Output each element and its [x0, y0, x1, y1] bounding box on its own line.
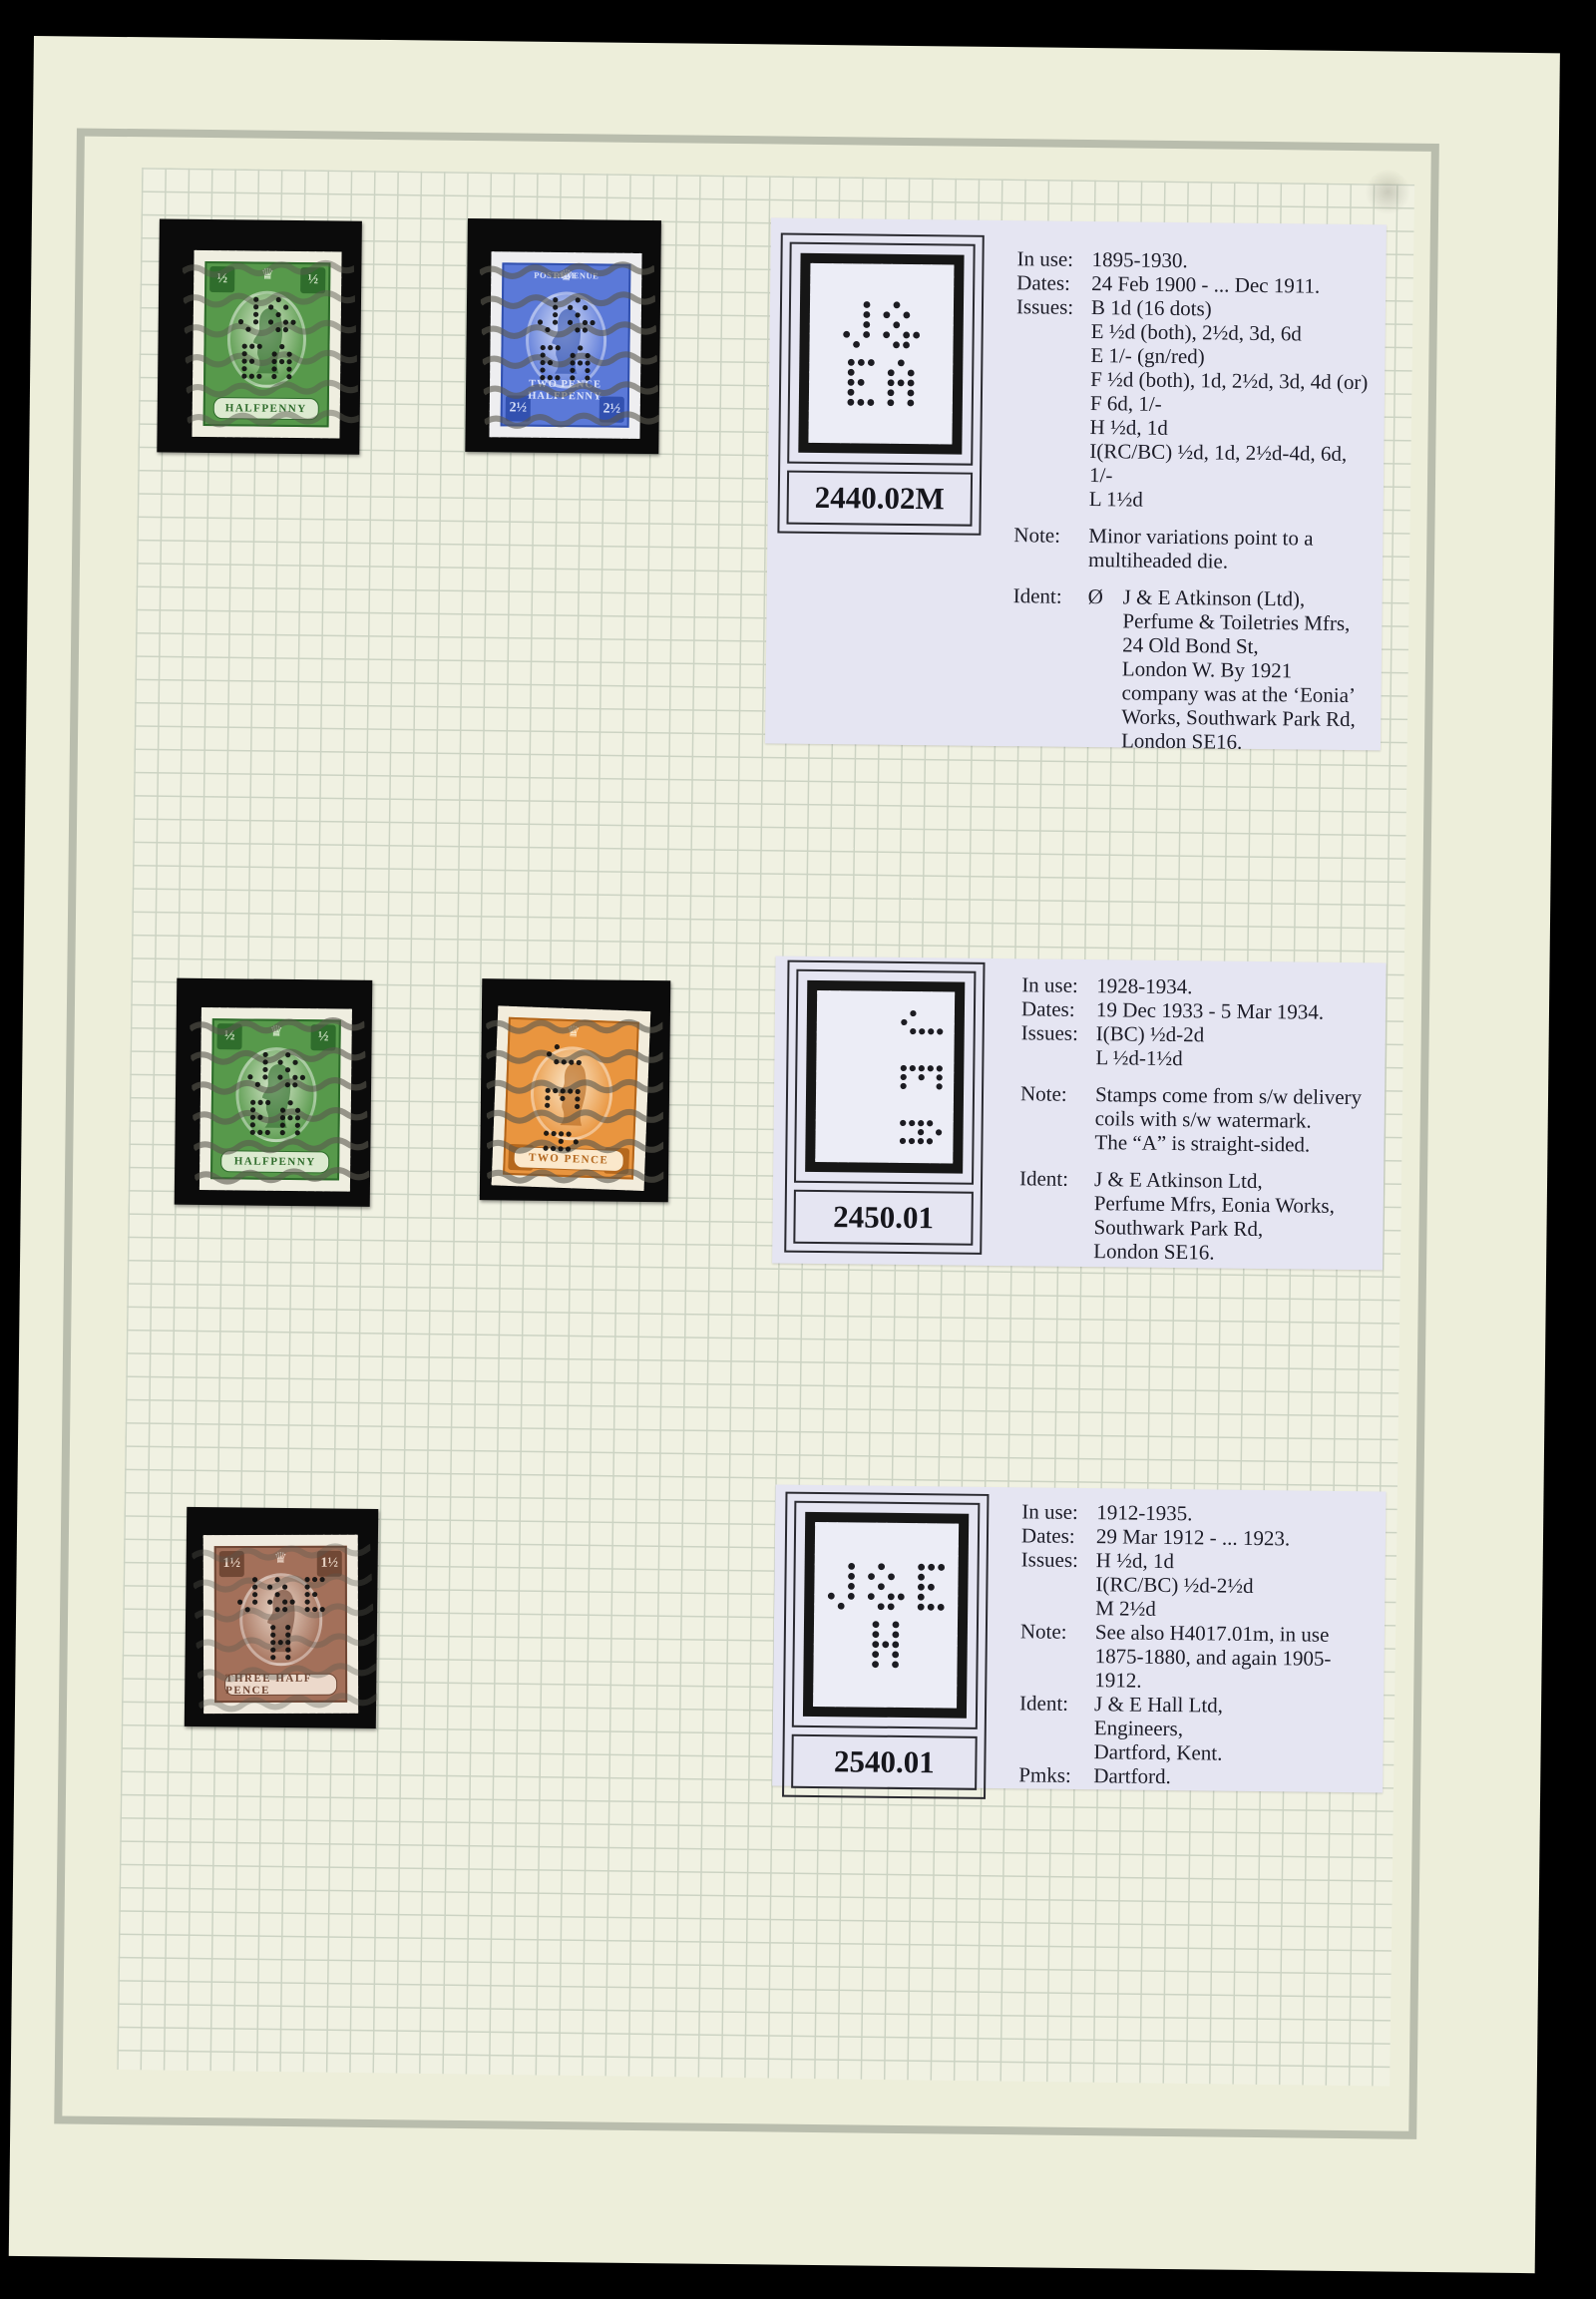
- two-pence-halfpenny-blue-stamp: 2½2½POSTAGEREVENUE♛TWO PENCEHALFPENNY: [489, 251, 641, 439]
- stamp-mount: 22♛TWO PENCE: [480, 978, 671, 1202]
- field-label: [1020, 1044, 1095, 1069]
- perfin-holes: [235, 1576, 325, 1666]
- catalog-row: multiheaded die.: [1013, 547, 1373, 575]
- field-value: London SE16.: [1086, 728, 1371, 755]
- perfin-letter-row: [240, 343, 293, 386]
- perfin-diagram-box: 2540.01: [782, 1492, 989, 1799]
- field-value: Engineers,: [1094, 1716, 1374, 1742]
- field-label: Note:: [1013, 523, 1088, 548]
- catalog-row: L ½d-1½d: [1020, 1044, 1375, 1072]
- field-value: 24 Feb 1900 - ... Dec 1911.: [1091, 271, 1376, 298]
- field-label: Dates:: [1021, 996, 1096, 1021]
- field-label: [1015, 366, 1090, 391]
- field-value: Stamps come from s/w delivery: [1095, 1082, 1375, 1109]
- field-value: 24 Old Bond St,: [1087, 632, 1372, 659]
- field-label: In use:: [1016, 246, 1091, 271]
- perfin-stamp-paper: [813, 1522, 959, 1709]
- perfin-letter: [907, 1110, 935, 1155]
- denomination-banner: HALFPENNY: [213, 397, 319, 420]
- field-label: Issues:: [1016, 294, 1091, 319]
- postmark-cancel-lines: [199, 254, 338, 256]
- value-tablet-tl: ½: [216, 1023, 241, 1049]
- field-value: Dartford.: [1093, 1763, 1373, 1790]
- field-label: [1018, 1738, 1093, 1763]
- perfin-letter-row: [245, 1050, 305, 1093]
- field-value: H ½d, 1d: [1089, 415, 1374, 442]
- perfin-holes: [549, 1035, 576, 1160]
- field-label: [1014, 438, 1090, 487]
- three-half-pence-brown-stamp: 1½1½♛THREE HALF PENCE: [203, 1535, 358, 1714]
- perfin-letters: [907, 1000, 936, 1155]
- field-value: Perfume Mfrs, Eonia Works,: [1094, 1191, 1374, 1218]
- field-value: I(BC) ½d-2d: [1096, 1021, 1376, 1048]
- field-label: Issues:: [1021, 1020, 1096, 1045]
- catalog-row: I(RC/BC) ½d, 1d, 2½d-4d, 6d, 1/-: [1014, 438, 1375, 490]
- field-label: [1020, 1105, 1095, 1130]
- perfin-letter: [908, 1055, 936, 1100]
- field-label: [1018, 1238, 1093, 1263]
- perfin-letter: [909, 1000, 937, 1045]
- scanned-album-photo: { "page_title": "GB KGV perfin album pag…: [0, 0, 1596, 2299]
- perfin-letter-row: [536, 296, 596, 339]
- perfin-letter-row: [269, 1623, 292, 1666]
- field-label: [1016, 318, 1091, 343]
- field-value: Dartford, Kent.: [1093, 1739, 1373, 1766]
- field-value: London W. By 1921: [1087, 656, 1372, 683]
- crown-icon: ♛: [260, 265, 274, 283]
- field-label: [1014, 486, 1089, 511]
- perfin-holes: [536, 296, 597, 387]
- two-pence-orange-stamp: 22♛TWO PENCE: [492, 1005, 651, 1191]
- field-value: 29 Mar 1912 - ... 1923.: [1096, 1524, 1376, 1551]
- field-value: J & E Atkinson Ltd,: [1094, 1167, 1374, 1194]
- field-value: E 1/- (gn/red): [1090, 343, 1375, 370]
- denomination-banner: HALFPENNY: [220, 1150, 329, 1173]
- crown-icon: ♛: [274, 1549, 288, 1567]
- field-label: [1019, 1190, 1094, 1215]
- value-tablet-tr: ½: [300, 267, 325, 293]
- field-label: [1012, 631, 1087, 656]
- halfpenny-green-stamp: ½½♛HALFPENNY: [199, 1007, 352, 1192]
- catalog-row: L 1½d: [1014, 486, 1374, 514]
- catalog-text: In use:1912-1935.Dates:29 Mar 1912 - ...…: [1018, 1499, 1376, 1790]
- perfin-letter: [549, 1122, 573, 1160]
- catalog-panel: 2440.02MIn use:1895-1930.Dates:24 Feb 19…: [765, 217, 1387, 750]
- perfin-stamp-outline: [787, 242, 976, 466]
- ident-symbol: Ø: [1088, 584, 1123, 608]
- perfin-letter-row: [237, 295, 297, 338]
- field-value: multiheaded die.: [1088, 548, 1373, 575]
- perfin-stamp-paper: [815, 990, 955, 1164]
- field-value: L ½d-1½d: [1095, 1045, 1375, 1072]
- field-label: [1014, 414, 1089, 439]
- field-label: [1019, 1715, 1094, 1739]
- field-value: Southwark Park Rd,: [1093, 1215, 1373, 1242]
- crown-icon: ♛: [560, 266, 574, 284]
- field-label: Issues:: [1021, 1547, 1096, 1572]
- field-value: I(RC/BC) ½d-2½d: [1095, 1572, 1375, 1599]
- field-label: Ident:: [1013, 583, 1088, 608]
- stamps-layer: ½½♛HALFPENNY2½2½POSTAGEREVENUE♛TWO PENCE…: [34, 36, 1560, 53]
- field-value: The “A” is straight-sided.: [1094, 1130, 1374, 1157]
- field-label: Note:: [1020, 1619, 1095, 1644]
- field-value: F 6d, 1/-: [1090, 391, 1375, 418]
- field-label: [1015, 390, 1090, 415]
- field-label: [1011, 703, 1086, 728]
- field-label: [1012, 655, 1087, 680]
- catalog-row: London SE16.: [1011, 727, 1371, 755]
- perfin-letters: [825, 1561, 946, 1670]
- field-label: [1011, 679, 1086, 704]
- catalog-number: 2540.01: [791, 1734, 978, 1790]
- perfin-letter-row: [826, 1561, 947, 1612]
- perfin-stamp-window: [803, 1512, 969, 1719]
- value-tablet-tr: 1½: [317, 1551, 342, 1577]
- field-label: [1011, 727, 1086, 752]
- catalog-text: In use:1928-1934.Dates:19 Dec 1933 - 5 M…: [1018, 972, 1376, 1266]
- field-label: [1018, 1214, 1093, 1239]
- perfin-letter-row: [841, 299, 922, 350]
- field-value: 1928-1934.: [1096, 973, 1376, 1000]
- halfpenny-green-stamp: ½½♛HALFPENNY: [192, 250, 341, 439]
- banner-line: HALFPENNY: [503, 390, 627, 403]
- perfin-stamp-outline: [794, 969, 976, 1185]
- field-label: [1019, 1643, 1095, 1692]
- perfin-holes: [245, 1050, 306, 1141]
- field-label: Note:: [1020, 1081, 1095, 1106]
- perfin-letter: [551, 1079, 575, 1117]
- catalog-row: Pmks:Dartford.: [1018, 1762, 1373, 1790]
- field-label: In use:: [1021, 1499, 1096, 1524]
- field-label: [1020, 1571, 1095, 1596]
- field-label: Pmks:: [1018, 1762, 1093, 1787]
- catalog-panel: 2540.01In use:1912-1935.Dates:29 Mar 191…: [772, 1485, 1386, 1793]
- stamp-mount: 1½1½♛THREE HALF PENCE: [185, 1507, 378, 1728]
- perfin-letter-row: [249, 1098, 302, 1141]
- perfin-holes: [236, 295, 297, 386]
- catalog-text: In use:1895-1930.Dates:24 Feb 1900 - ...…: [1011, 246, 1377, 755]
- field-label: Dates:: [1021, 1523, 1096, 1548]
- field-value: E ½d (both), 2½d, 3d, 6d: [1091, 319, 1376, 346]
- perfin-letter: [552, 1035, 576, 1073]
- field-label: [1013, 547, 1088, 572]
- field-label: Ident:: [1019, 1166, 1094, 1191]
- value-tablet-tl: ½: [209, 266, 234, 292]
- field-value: Minor variations point to a: [1088, 524, 1373, 551]
- field-value: coils with s/w watermark.: [1095, 1106, 1375, 1133]
- catalog-row: 1875-1880, and again 1905-1912.: [1019, 1643, 1375, 1695]
- field-label: In use:: [1021, 972, 1096, 997]
- perfin-stamp-outline: [792, 1501, 981, 1729]
- perfin-stamp-paper: [808, 263, 954, 445]
- field-value: L 1½d: [1089, 487, 1374, 514]
- field-value: J & E Hall Ltd,: [1094, 1692, 1374, 1719]
- perfin-diagram-box: 2450.01: [784, 960, 985, 1255]
- catalog-panels-layer: 2440.02MIn use:1895-1930.Dates:24 Feb 19…: [34, 36, 1560, 53]
- field-value: F ½d (both), 1d, 2½d, 3d, 4d (or): [1090, 367, 1375, 394]
- perfin-stamp-window: [805, 980, 965, 1174]
- perfin-stamp-window: [798, 253, 964, 455]
- field-value: I(RC/BC) ½d, 1d, 2½d-4d, 6d, 1/-: [1089, 439, 1375, 490]
- perfin-letters: [841, 299, 922, 408]
- catalog-row: London SE16.: [1018, 1238, 1373, 1266]
- album-page: ½½♛HALFPENNY2½2½POSTAGEREVENUE♛TWO PENCE…: [9, 36, 1560, 2273]
- field-value: 1912-1935.: [1096, 1500, 1376, 1527]
- perfin-letter-row: [235, 1576, 325, 1619]
- perfin-letter-row: [870, 1619, 901, 1669]
- postmark-cancel-lines: [496, 255, 638, 257]
- field-value: B 1d (16 dots): [1091, 295, 1376, 322]
- catalog-number: 2450.01: [793, 1190, 974, 1246]
- perfin-letter-row: [539, 344, 592, 387]
- field-label: [1012, 607, 1087, 632]
- field-label: [1020, 1595, 1095, 1620]
- field-label: [1015, 342, 1090, 367]
- field-label: [1019, 1129, 1094, 1154]
- field-label: Dates:: [1016, 270, 1091, 295]
- field-value: Perfume & Toiletries Mfrs,: [1087, 608, 1372, 635]
- field-label: Ident:: [1019, 1691, 1094, 1716]
- perfin-letter-row: [846, 357, 917, 408]
- field-value: M 2½d: [1095, 1596, 1375, 1623]
- crown-icon: ♛: [269, 1022, 283, 1040]
- field-value: 1895-1930.: [1091, 247, 1376, 274]
- field-value: Works, Southwark Park Rd,: [1086, 704, 1371, 731]
- value-tablet-tl: 1½: [219, 1551, 244, 1577]
- denomination-banner: THREE HALF PENCE: [224, 1674, 337, 1696]
- stamp-mount: ½½♛HALFPENNY: [175, 978, 373, 1207]
- field-value: London SE16.: [1093, 1239, 1373, 1266]
- field-value: 1875-1880, and again 1905-1912.: [1094, 1644, 1375, 1695]
- catalog-number: 2440.02M: [786, 471, 973, 527]
- field-value: See also H4017.01m, in use: [1095, 1620, 1375, 1647]
- field-value: H ½d, 1d: [1096, 1548, 1376, 1575]
- postmark-cancel-lines: [502, 1010, 646, 1015]
- perfin-diagram-box: 2440.02M: [777, 233, 984, 536]
- value-tablet-tr: ½: [310, 1024, 335, 1050]
- stamp-mount: ½½♛HALFPENNY: [157, 218, 362, 454]
- stamp-mount: 2½2½POSTAGEREVENUE♛TWO PENCEHALFPENNY: [465, 218, 661, 454]
- catalog-row: The “A” is straight-sided.: [1019, 1129, 1374, 1157]
- field-value: company was at the ‘Eonia’: [1086, 680, 1371, 707]
- field-value: J & E Atkinson (Ltd),: [1123, 584, 1373, 611]
- postmark-cancel-lines: [205, 1011, 348, 1013]
- field-value: 19 Dec 1933 - 5 Mar 1934.: [1096, 997, 1376, 1024]
- catalog-panel: 2450.01In use:1928-1934.Dates:19 Dec 193…: [772, 956, 1386, 1270]
